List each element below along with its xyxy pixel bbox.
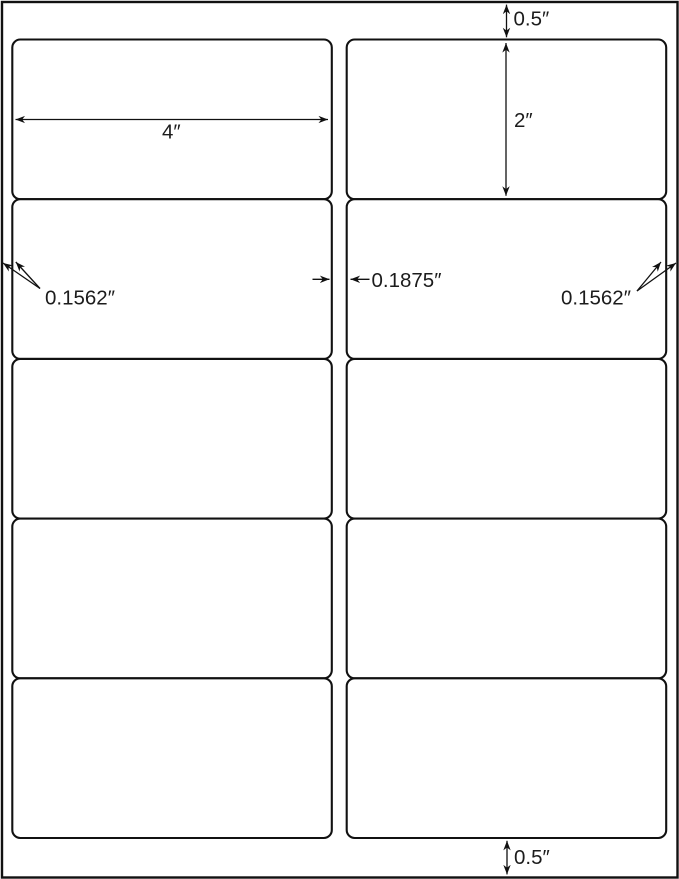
svg-text:0.1875″: 0.1875″ xyxy=(372,269,442,292)
svg-text:0.1562″: 0.1562″ xyxy=(45,287,115,310)
svg-text:0.5″: 0.5″ xyxy=(514,8,550,31)
svg-text:0.1562″: 0.1562″ xyxy=(561,287,631,310)
svg-text:2″: 2″ xyxy=(514,109,533,132)
svg-text:4″: 4″ xyxy=(162,121,181,144)
svg-text:0.5″: 0.5″ xyxy=(514,846,550,869)
